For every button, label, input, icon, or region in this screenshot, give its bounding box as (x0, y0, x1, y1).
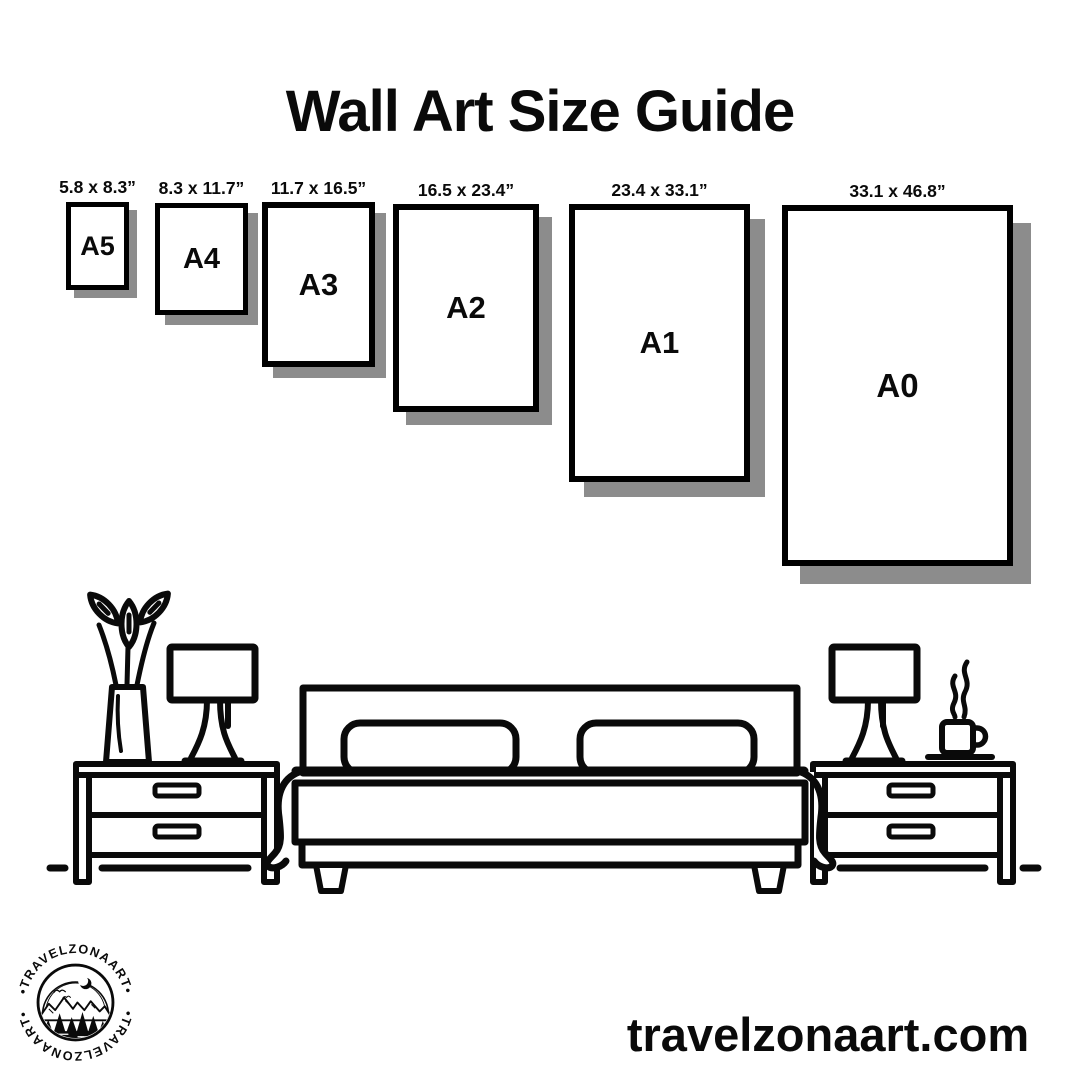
website-url: travelzonaart.com (627, 1007, 1029, 1062)
size-card-a0: 33.1 x 46.8” A0 (782, 205, 1013, 566)
size-code-label: A1 (640, 325, 680, 361)
size-dims-label: 5.8 x 8.3” (59, 177, 136, 198)
size-card-a2: 16.5 x 23.4” A2 (393, 204, 539, 412)
size-card-a3: 11.7 x 16.5” A3 (262, 202, 375, 367)
size-card-a1: 23.4 x 33.1” A1 (569, 204, 750, 482)
size-code-label: A4 (183, 243, 220, 276)
size-code-label: A2 (446, 290, 486, 326)
size-dims-label: 16.5 x 23.4” (418, 180, 514, 201)
size-card-a5: 5.8 x 8.3” A5 (66, 202, 129, 290)
brand-logo: •TRAVELZONAART• •TRAVELZONAART• (12, 939, 139, 1066)
flower-vase-icon (85, 589, 172, 762)
page-title: Wall Art Size Guide (0, 83, 1080, 141)
size-dims-label: 23.4 x 33.1” (611, 180, 707, 201)
bedroom-illustration (35, 585, 1045, 895)
coffee-cup-icon (928, 662, 992, 757)
table-lamp-left-icon (170, 647, 255, 761)
size-code-label: A5 (80, 231, 115, 262)
size-code-label: A0 (876, 367, 918, 405)
table-lamp-right-icon (832, 647, 917, 761)
nightstand-right-icon (813, 764, 1038, 882)
size-dims-label: 11.7 x 16.5” (271, 178, 366, 199)
size-code-label: A3 (299, 267, 339, 303)
size-dims-label: 33.1 x 46.8” (849, 181, 945, 202)
size-card-a4: 8.3 x 11.7” A4 (155, 203, 248, 315)
double-bed-icon (267, 688, 833, 891)
size-dims-label: 8.3 x 11.7” (159, 178, 245, 199)
nightstand-left-icon (50, 764, 277, 882)
